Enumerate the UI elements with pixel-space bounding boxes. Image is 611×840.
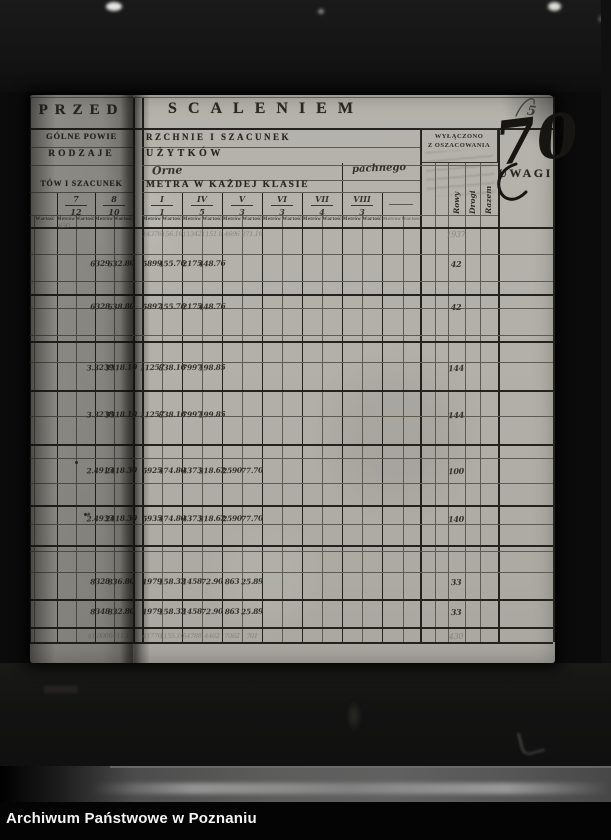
subheader-wartosc: Wartość — [162, 217, 181, 222]
grid-hline — [30, 281, 553, 282]
right-page-title: SCALENIEM — [146, 100, 386, 118]
grid-hline — [30, 505, 553, 507]
left-page-cell: 3318.10 — [105, 409, 137, 419]
rowy-cell: 100 — [448, 466, 464, 477]
left-page-cell: 3318.10 — [105, 362, 137, 372]
right-class-header: VI3 — [264, 194, 300, 217]
rowy-cell: 33 — [451, 607, 462, 617]
right-class-header: I1 — [144, 194, 180, 217]
left-page-title: PRZED — [30, 102, 133, 119]
right-class-header: VIII3 — [344, 194, 380, 217]
ink-dot — [75, 461, 78, 464]
table-cell: 198.85 — [198, 363, 225, 373]
grid-hline — [30, 642, 553, 644]
subheader-metrow: Metrów — [303, 217, 321, 222]
table-cell: 448.76 — [198, 302, 225, 312]
right-header-line5: METRA W KAŻDEJ KLASIE — [146, 180, 309, 190]
table-cell: 1458 — [182, 607, 202, 617]
subheader-wartosc: Wartość — [322, 217, 341, 222]
left-page-cell: 411.1 — [112, 632, 129, 641]
rowy-cell: 33 — [451, 577, 462, 587]
grid-hline — [30, 335, 553, 336]
grid-hline — [30, 545, 553, 547]
table-cell: 199.85 — [198, 410, 225, 420]
table-cell: 25.89 — [241, 577, 263, 587]
subheader-metrow: Metrów — [223, 217, 241, 222]
table-cell: 863 — [224, 607, 239, 617]
grid-hline — [30, 192, 133, 193]
grid-hline — [30, 165, 133, 166]
subheader-wartosc: Wartość — [202, 217, 221, 222]
grid-hline — [30, 483, 553, 484]
handwritten-usage-label-right: pachnego — [352, 162, 406, 175]
subheader-metrow: Metrów — [95, 217, 113, 222]
registry-mark-flourish — [492, 112, 562, 222]
left-page-cell: 41.0000 — [87, 632, 112, 641]
table-cell: 25.89 — [241, 607, 263, 617]
pencil-note: 630 — [58, 222, 70, 230]
subheader-wartosc: Wartość — [113, 217, 132, 222]
table-cell: 863 — [224, 577, 239, 587]
rowy-cell: 144 — [448, 410, 464, 421]
blank-class-dash — [389, 204, 413, 205]
rowy-cell: 42 — [451, 302, 462, 312]
grid-vline — [420, 128, 422, 642]
table-cell: 77.70 — [241, 466, 263, 476]
grid-vline — [382, 192, 383, 642]
table-cell: 2590 — [222, 514, 242, 524]
grid-hline — [30, 627, 553, 629]
grid-hline — [30, 341, 553, 343]
grid-vline — [362, 215, 363, 642]
table-cell: 7062 — [224, 632, 240, 641]
ink-dot — [84, 513, 87, 516]
rowy-cell: 140 — [448, 514, 464, 525]
rowy-cell: 1937 — [446, 230, 465, 240]
table-cell: 72.90 — [201, 577, 223, 587]
right-class-header: VII4 — [304, 194, 340, 217]
left-class-header: 810 — [96, 194, 132, 217]
grid-hline — [30, 97, 553, 98]
left-header-line3: RODZAJE — [30, 149, 133, 159]
smudge — [346, 700, 362, 732]
left-header-line2: GÓLNE POWIE — [30, 131, 133, 141]
table-cell: 156.16 — [161, 230, 182, 239]
grid-hline — [30, 390, 553, 392]
grid-vline — [57, 192, 58, 642]
subheader-wartosc: Wartość — [75, 217, 94, 222]
grid-vline — [322, 215, 323, 642]
table-cell: 701 — [246, 632, 258, 640]
table-cell: 4696 — [224, 230, 240, 239]
excluded-stamp-line1: WYŁĄCZONO — [421, 133, 497, 140]
right-class-header: V3 — [224, 194, 260, 217]
table-cell: 271.16 — [241, 230, 262, 239]
archive-caption: Archiwum Państwowe w Poznaniu — [6, 810, 257, 827]
left-header-line4: TÓW I SZACUNEK — [30, 179, 133, 188]
subheader-metrow: Metrów — [343, 217, 361, 222]
left-page-cell: 2418.30 — [105, 513, 137, 523]
archival-scan-photo: 712810I1IV5V3VI3VII4VIII3MetrówWartośćMe… — [0, 0, 611, 840]
grid-vline — [342, 163, 343, 642]
grid-vline — [262, 192, 263, 642]
left-class-header: 712 — [58, 194, 94, 217]
left-page-cell: 638.80 — [107, 302, 134, 312]
grid-vline — [403, 215, 404, 642]
ruler-band — [0, 766, 611, 802]
grid-vline — [480, 163, 481, 642]
grid-hline — [30, 551, 553, 552]
subheader-wartosc: Wartość — [282, 217, 301, 222]
table-cell: 54788 — [182, 632, 201, 641]
table-cell: 1458 — [182, 577, 202, 587]
rowy-cell: 42 — [451, 259, 462, 269]
film-edge-top — [0, 0, 611, 92]
table-cell: 14376 — [142, 230, 161, 239]
right-header-line2: RZCHNIE I SZACUNEK — [146, 132, 291, 142]
grid-hline — [30, 147, 133, 148]
table-cell: 77.70 — [241, 514, 263, 524]
subheader-wartosc: Wartość — [35, 217, 54, 222]
film-scratch-blob — [318, 9, 324, 14]
grid-hline — [30, 599, 553, 601]
rowy-cell: 430 — [449, 632, 464, 641]
left-page-cell: 836.80 — [107, 577, 134, 587]
rowy-cell: 144 — [448, 363, 464, 374]
right-header-line3: UŻYTKÓW — [146, 148, 224, 159]
grid-hline — [30, 254, 553, 255]
grid-hline — [30, 294, 553, 296]
subheader-wartosc: Wartość — [401, 217, 420, 222]
smudge — [44, 686, 78, 693]
table-cell: 448.76 — [198, 259, 225, 269]
grid-vline — [282, 215, 283, 642]
subheader-wartosc: Wartość — [242, 217, 261, 222]
table-surface-below-page — [0, 663, 611, 766]
table-cell: 2590 — [222, 466, 242, 476]
handwritten-usage-label-left: Orne — [152, 163, 183, 177]
table-cell: 1155.16 — [159, 632, 184, 641]
grid-hline — [30, 458, 553, 459]
subheader-wartosc: Wartość — [362, 217, 381, 222]
grid-vline — [76, 215, 77, 642]
grid-vline — [302, 192, 303, 642]
grid-vline — [34, 215, 35, 642]
table-cell: 1151.6 — [201, 230, 222, 239]
subheader-metrow: Metrów — [183, 217, 201, 222]
table-cell: 11342 — [182, 230, 201, 239]
grid-hline — [30, 524, 553, 525]
right-class-header: IV5 — [184, 194, 220, 217]
page-number-flourish — [508, 92, 548, 118]
table-cell: 72.90 — [201, 607, 223, 617]
subheader-metrow: Metrów — [263, 217, 281, 222]
left-page-cell: 832.80 — [107, 607, 134, 617]
left-page-cell: 632.80 — [107, 259, 134, 269]
grid-hline — [30, 227, 553, 229]
grid-hline — [30, 444, 553, 446]
subheader-metrow: Metrów — [383, 217, 401, 222]
film-scratch-blob — [548, 2, 561, 11]
table-cell: 4462 — [204, 632, 220, 641]
grid-hline — [30, 572, 553, 573]
grid-vline — [435, 163, 436, 642]
left-page-cell: 2418.30 — [105, 465, 137, 475]
film-scratch-blob — [106, 2, 122, 11]
subheader-metrow: Metrów — [143, 217, 161, 222]
faint-ink-stamp — [425, 148, 495, 196]
